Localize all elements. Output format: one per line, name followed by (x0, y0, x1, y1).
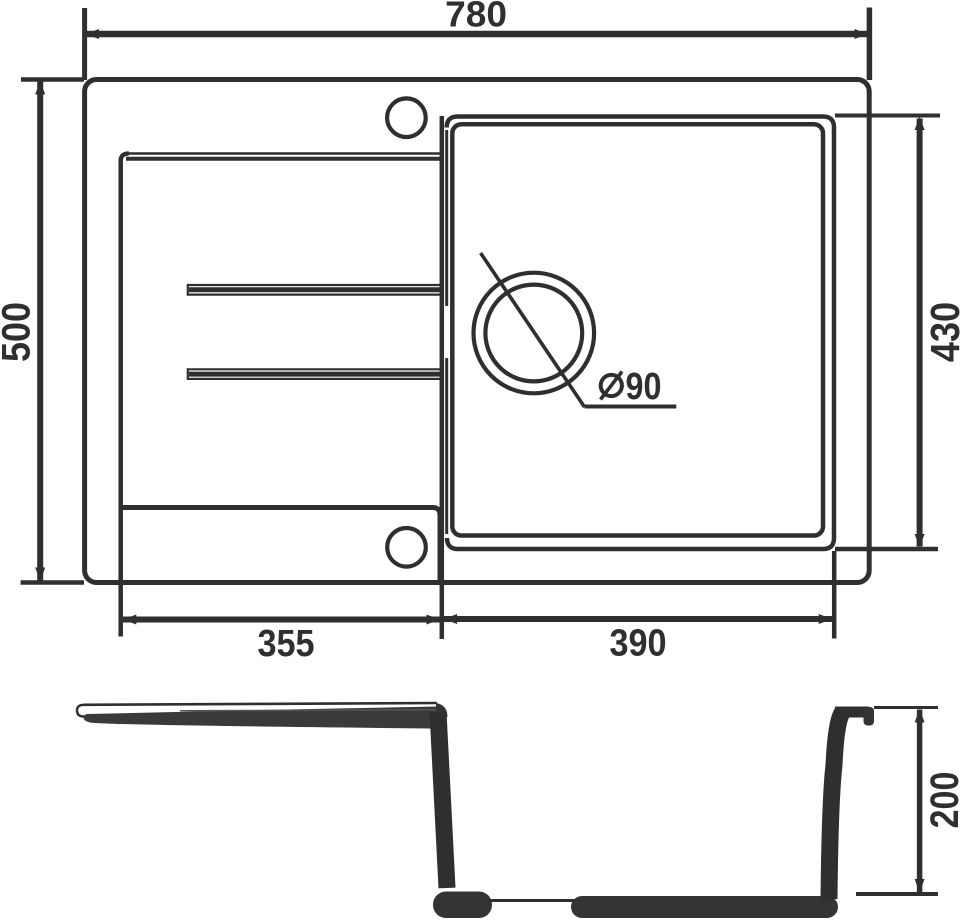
svg-text:780: 780 (445, 0, 507, 34)
svg-text:90: 90 (626, 366, 662, 408)
svg-text:200: 200 (921, 772, 960, 829)
svg-text:430: 430 (923, 302, 960, 362)
svg-text:500: 500 (0, 302, 39, 362)
svg-text:355: 355 (257, 621, 314, 664)
svg-text:390: 390 (609, 621, 666, 664)
